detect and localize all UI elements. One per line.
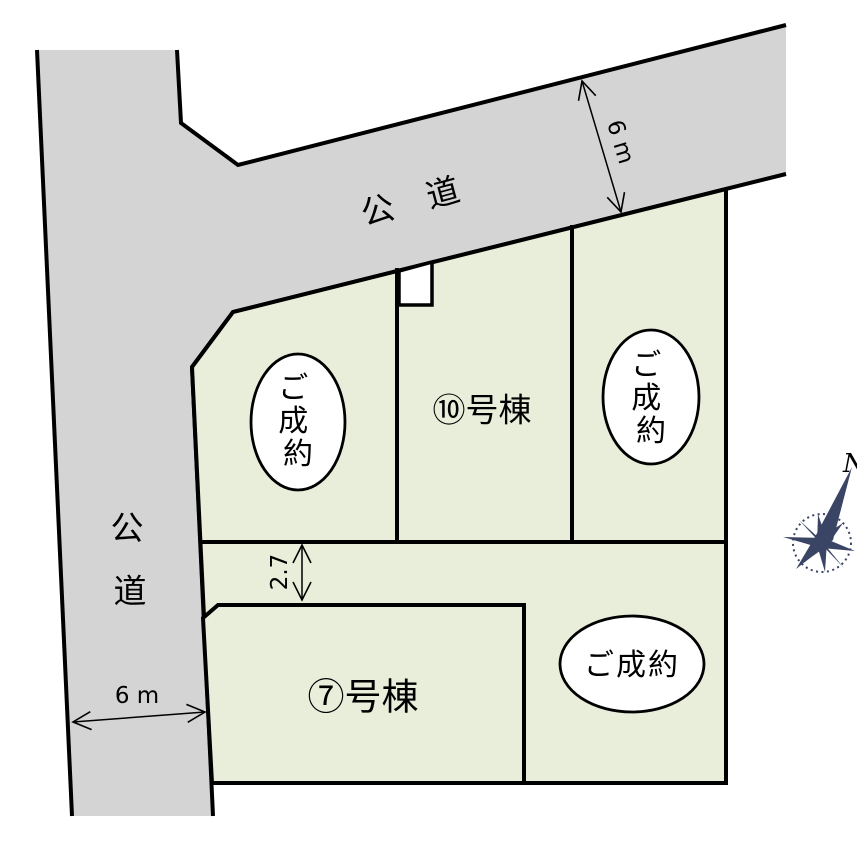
compass-north-label: N [842,449,857,479]
lot-7-label: ⑦号棟 [308,676,419,719]
setback-width-label: 2.7 [267,554,293,591]
left-road-name-char-1: 公 [111,509,144,548]
boundary-notch [399,262,432,305]
compass-icon: N [783,449,857,572]
sold-badge-lower-right-label: ご成約 [584,648,680,683]
site-plan-drawing: ご 成 約 ご 成 約 ご成約 ⑩号棟 ⑦号棟 公 道 公 道 6 m 6 m [0,0,857,846]
sold-badge-upper-left-label: ご 成 約 [278,371,318,472]
left-road-width-label: 6 m [115,683,159,709]
site-plan-page: ご 成 約 ご 成 約 ご成約 ⑩号棟 ⑦号棟 公 道 公 道 6 m 6 m [0,0,857,846]
sold-badge-upper-right-label: ご 成 約 [631,348,671,449]
lot-10-label: ⑩号棟 [433,391,532,430]
left-road-name-char-2: 道 [114,572,147,611]
